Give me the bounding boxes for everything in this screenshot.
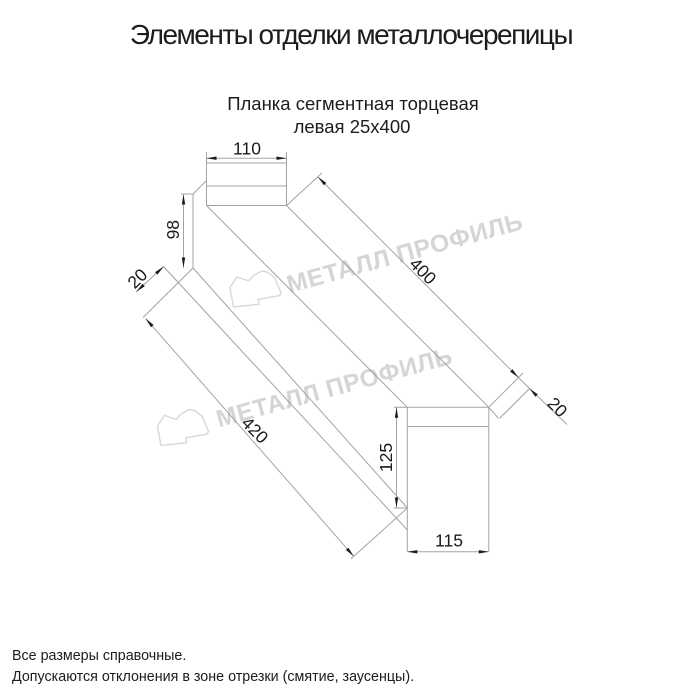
- svg-text:125: 125: [376, 443, 396, 472]
- svg-text:110: 110: [233, 139, 261, 159]
- svg-text:20: 20: [543, 393, 571, 421]
- svg-text:115: 115: [435, 531, 463, 551]
- svg-text:МЕТАЛЛ ПРОФИЛЬ: МЕТАЛЛ ПРОФИЛЬ: [284, 208, 526, 298]
- svg-text:20: 20: [123, 264, 151, 292]
- svg-text:98: 98: [163, 220, 183, 239]
